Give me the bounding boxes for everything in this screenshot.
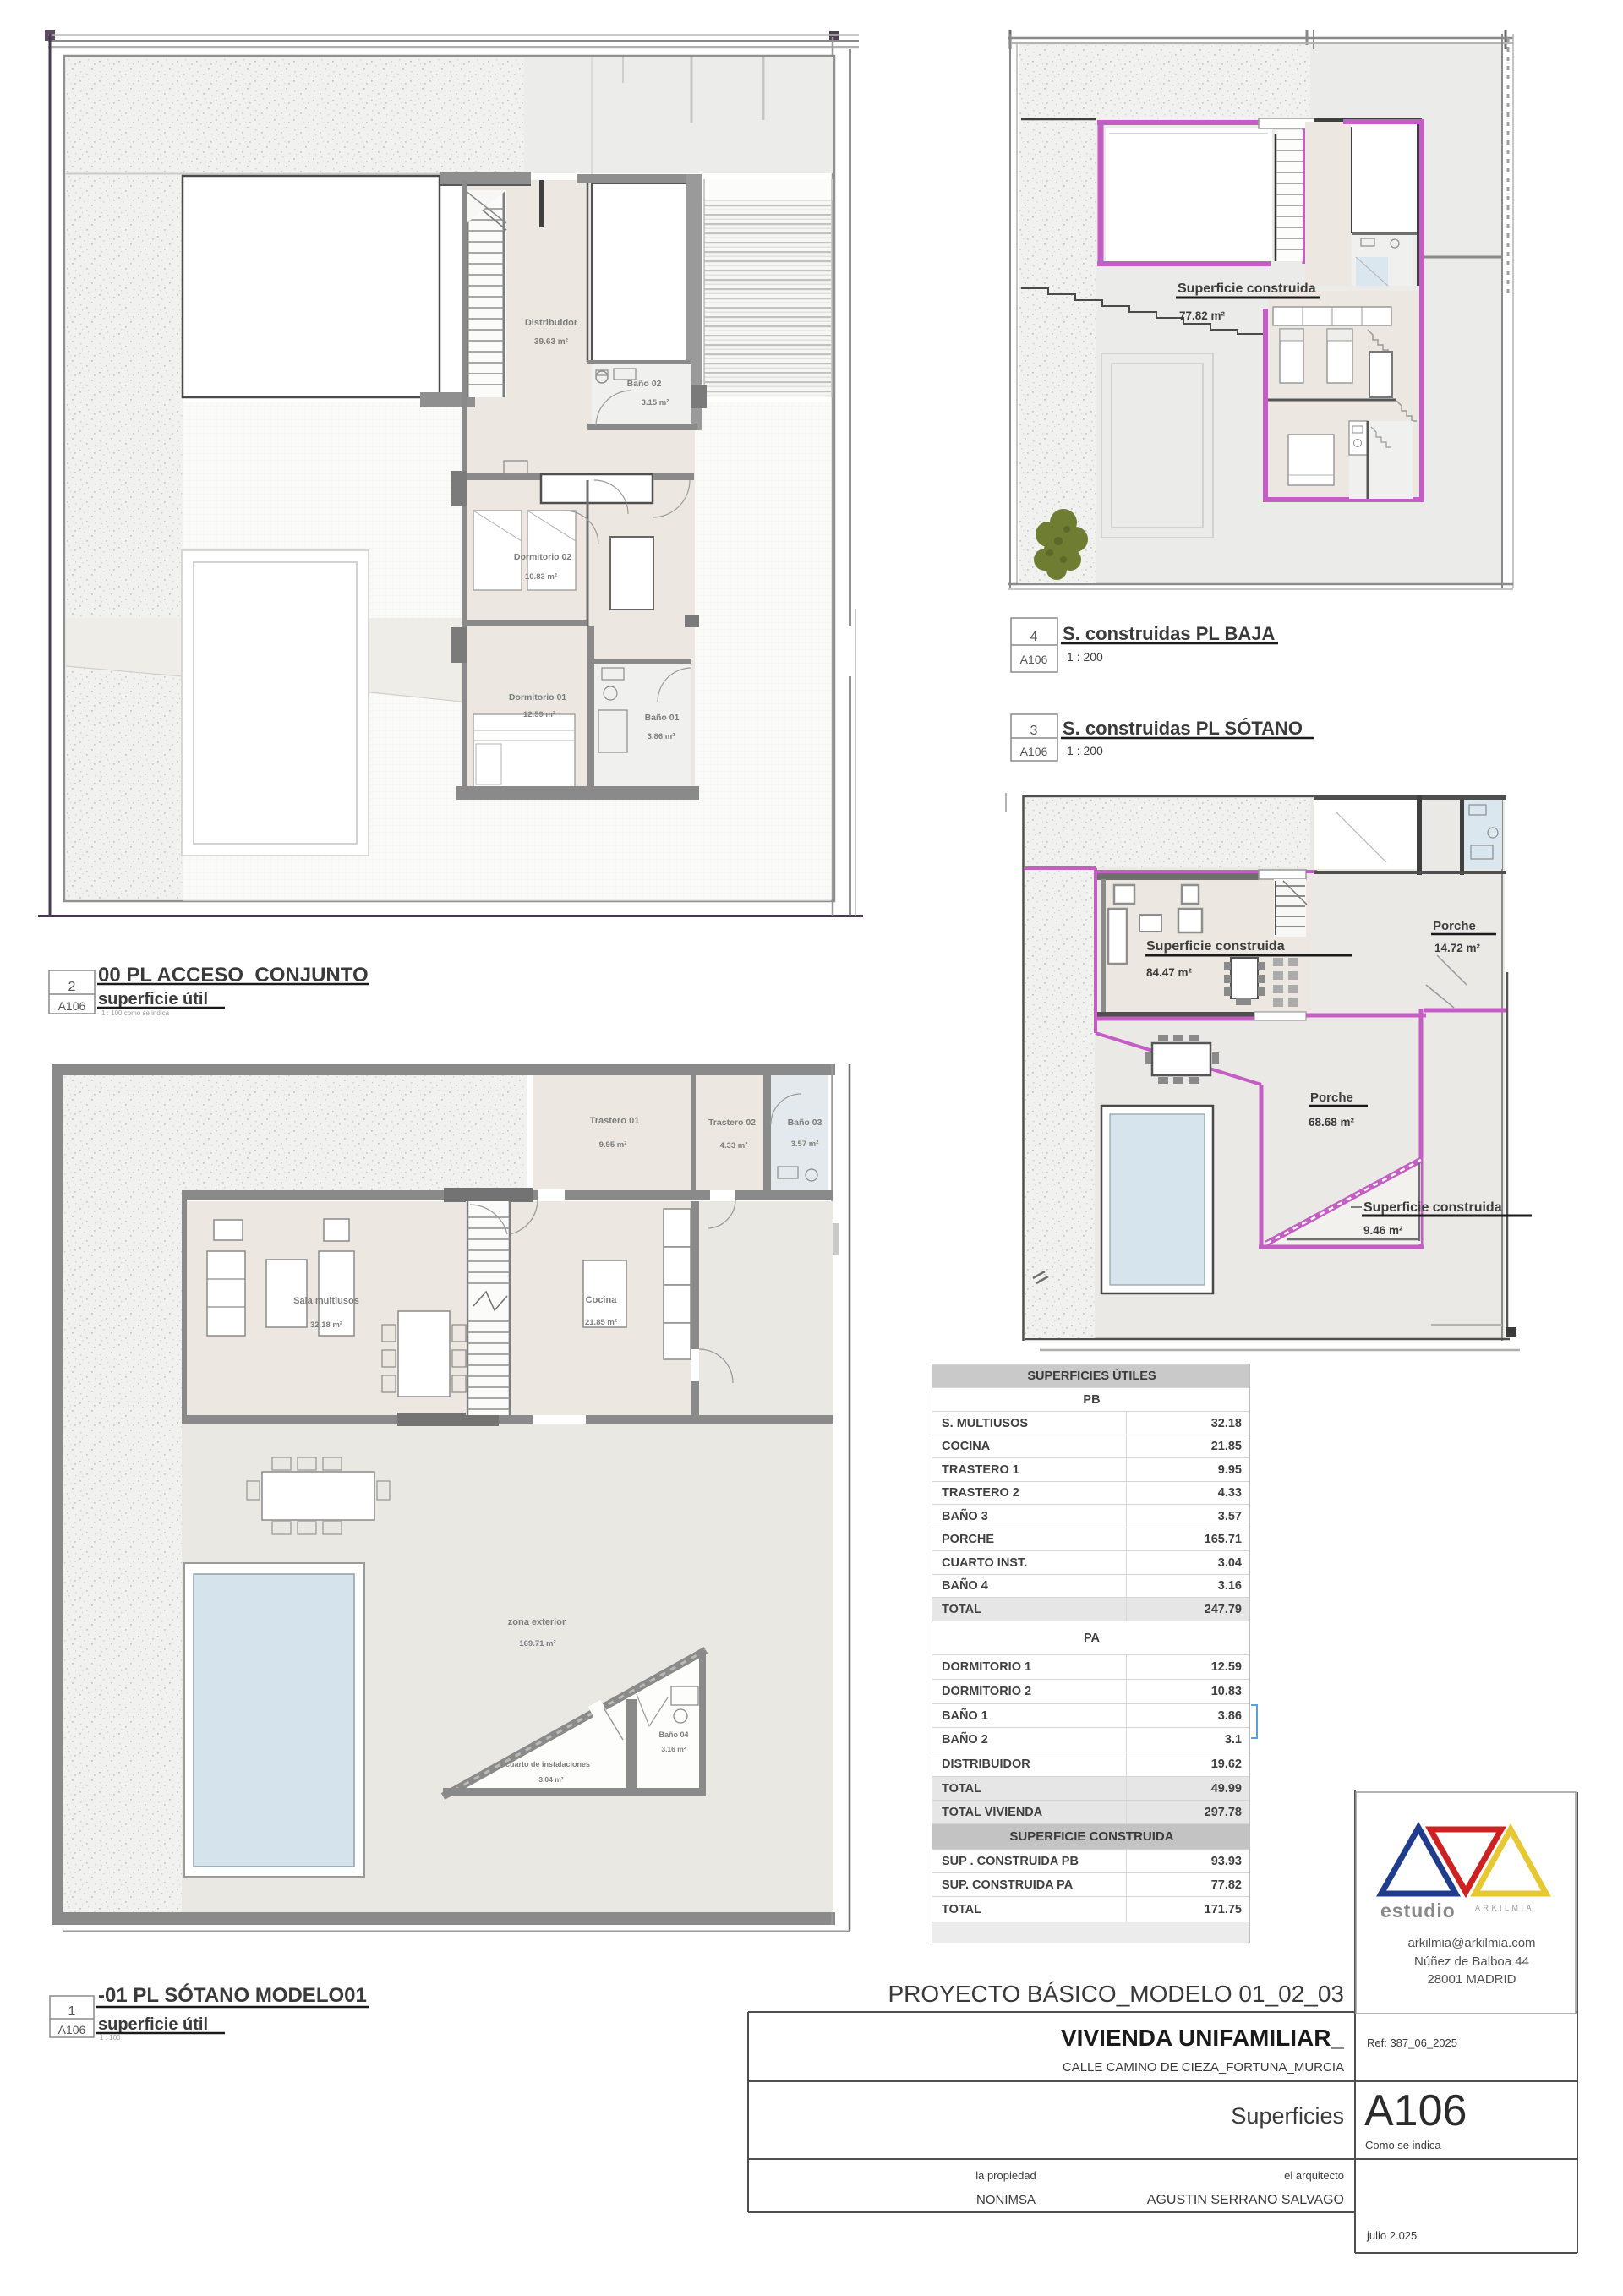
svg-text:3: 3	[1030, 724, 1038, 738]
svg-text:Baño 02: Baño 02	[627, 379, 662, 389]
svg-text:28001 MADRID: 28001 MADRID	[1427, 1972, 1516, 1987]
svg-text:Baño 03: Baño 03	[788, 1118, 822, 1128]
svg-text:9.95 m²: 9.95 m²	[599, 1140, 627, 1150]
svg-text:Porche: Porche	[1310, 1091, 1353, 1105]
svg-text:Dormitorio 01: Dormitorio 01	[509, 692, 566, 702]
svg-text:Distribuidor: Distribuidor	[525, 318, 578, 328]
svg-text:zona exterior: zona exterior	[508, 1617, 566, 1627]
svg-text:14.72 m²: 14.72 m²	[1434, 942, 1481, 954]
svg-text:3.57 m²: 3.57 m²	[791, 1140, 819, 1149]
svg-text:cuarto de instalaciones: cuarto de instalaciones	[505, 1760, 590, 1768]
svg-text:Baño 04: Baño 04	[658, 1730, 688, 1739]
svg-text:Como se indica: Como se indica	[1365, 2139, 1441, 2151]
svg-text:Ref: 387_06_2025: Ref: 387_06_2025	[1367, 2036, 1457, 2049]
svg-text:superficie útil: superficie útil	[98, 990, 208, 1009]
svg-text:84.47 m²: 84.47 m²	[1146, 966, 1193, 979]
svg-text:1 : 100 como se indica: 1 : 100 como se indica	[101, 1009, 170, 1017]
svg-text:Trastero 02: Trastero 02	[708, 1118, 756, 1128]
svg-text:A106: A106	[1020, 653, 1048, 666]
svg-text:la propiedad: la propiedad	[975, 2169, 1036, 2182]
svg-text:32.18 m²: 32.18 m²	[310, 1320, 342, 1330]
svg-text:A106: A106	[58, 2023, 86, 2036]
svg-text:2: 2	[68, 980, 76, 994]
svg-text:PROYECTO BÁSICO_MODELO 01_02_0: PROYECTO BÁSICO_MODELO 01_02_03	[888, 1981, 1345, 2007]
svg-text:169.71 m²: 169.71 m²	[519, 1639, 555, 1648]
svg-text:Cocina: Cocina	[586, 1295, 618, 1305]
svg-text:12.59 m²: 12.59 m²	[523, 710, 555, 719]
svg-text:Sala multiusos: Sala multiusos	[293, 1296, 359, 1306]
svg-text:1 : 200: 1 : 200	[1067, 744, 1103, 757]
svg-text:Superficie construida: Superficie construida	[1363, 1200, 1502, 1215]
svg-text:julio 2.025: julio 2.025	[1366, 2229, 1417, 2242]
svg-text:Superficie construida: Superficie construida	[1178, 282, 1316, 296]
svg-text:3.04 m²: 3.04 m²	[538, 1775, 563, 1784]
svg-text:4.33 m²: 4.33 m²	[720, 1141, 748, 1151]
svg-text:9.46 m²: 9.46 m²	[1363, 1224, 1403, 1237]
svg-text:3.86 m²: 3.86 m²	[648, 732, 675, 741]
svg-text:Baño 01: Baño 01	[645, 713, 680, 723]
svg-text:AGUSTIN SERRANO SALVAGO: AGUSTIN SERRANO SALVAGO	[1147, 2193, 1344, 2207]
svg-text:NONIMSA: NONIMSA	[976, 2193, 1036, 2207]
svg-text:Núñez de Balboa 44: Núñez de Balboa 44	[1414, 1954, 1529, 1969]
svg-text:Dormitorio 02: Dormitorio 02	[514, 552, 571, 562]
svg-text:superficie útil: superficie útil	[98, 2015, 208, 2034]
svg-text:estudio: estudio	[1380, 1900, 1456, 1922]
svg-text:S. construidas PL BAJA: S. construidas PL BAJA	[1063, 623, 1276, 644]
svg-text:3.15 m²: 3.15 m²	[642, 398, 669, 407]
svg-text:Porche: Porche	[1433, 919, 1476, 933]
svg-text:A106: A106	[58, 999, 86, 1013]
svg-text:A106: A106	[1364, 2086, 1467, 2135]
svg-text:CALLE CAMINO DE CIEZA_FORTUNA_: CALLE CAMINO DE CIEZA_FORTUNA_MURCIA	[1063, 2060, 1344, 2075]
svg-text:-01 PL SÓTANO MODELO01: -01 PL SÓTANO MODELO01	[98, 1983, 367, 2007]
svg-text:A106: A106	[1020, 745, 1048, 758]
svg-text:VIVIENDA UNIFAMILIAR_: VIVIENDA UNIFAMILIAR_	[1061, 2025, 1344, 2051]
svg-text:Superficies: Superficies	[1231, 2103, 1344, 2129]
svg-text:21.85 m²: 21.85 m²	[585, 1318, 617, 1327]
svg-text:4: 4	[1030, 630, 1038, 644]
svg-text:3.16 m²: 3.16 m²	[661, 1745, 686, 1753]
svg-text:68.68 m²: 68.68 m²	[1309, 1116, 1355, 1129]
svg-text:77.82 m²: 77.82 m²	[1179, 309, 1226, 322]
svg-text:S. construidas PL SÓTANO: S. construidas PL SÓTANO	[1063, 718, 1303, 739]
svg-text:39.63 m²: 39.63 m²	[534, 337, 569, 347]
svg-text:Superficie construida: Superficie construida	[1146, 939, 1285, 954]
svg-text:10.83 m²: 10.83 m²	[525, 572, 557, 582]
svg-text:arkilmia@arkilmia.com: arkilmia@arkilmia.com	[1407, 1936, 1535, 1950]
svg-text:1 : 100: 1 : 100	[100, 2034, 121, 2042]
svg-text:1 : 200: 1 : 200	[1067, 650, 1103, 664]
svg-text:ARKILMIA: ARKILMIA	[1475, 1904, 1534, 1912]
svg-text:Trastero 01: Trastero 01	[590, 1116, 640, 1126]
svg-text:1: 1	[68, 2004, 76, 2019]
svg-text:el arquitecto: el arquitecto	[1284, 2169, 1344, 2182]
